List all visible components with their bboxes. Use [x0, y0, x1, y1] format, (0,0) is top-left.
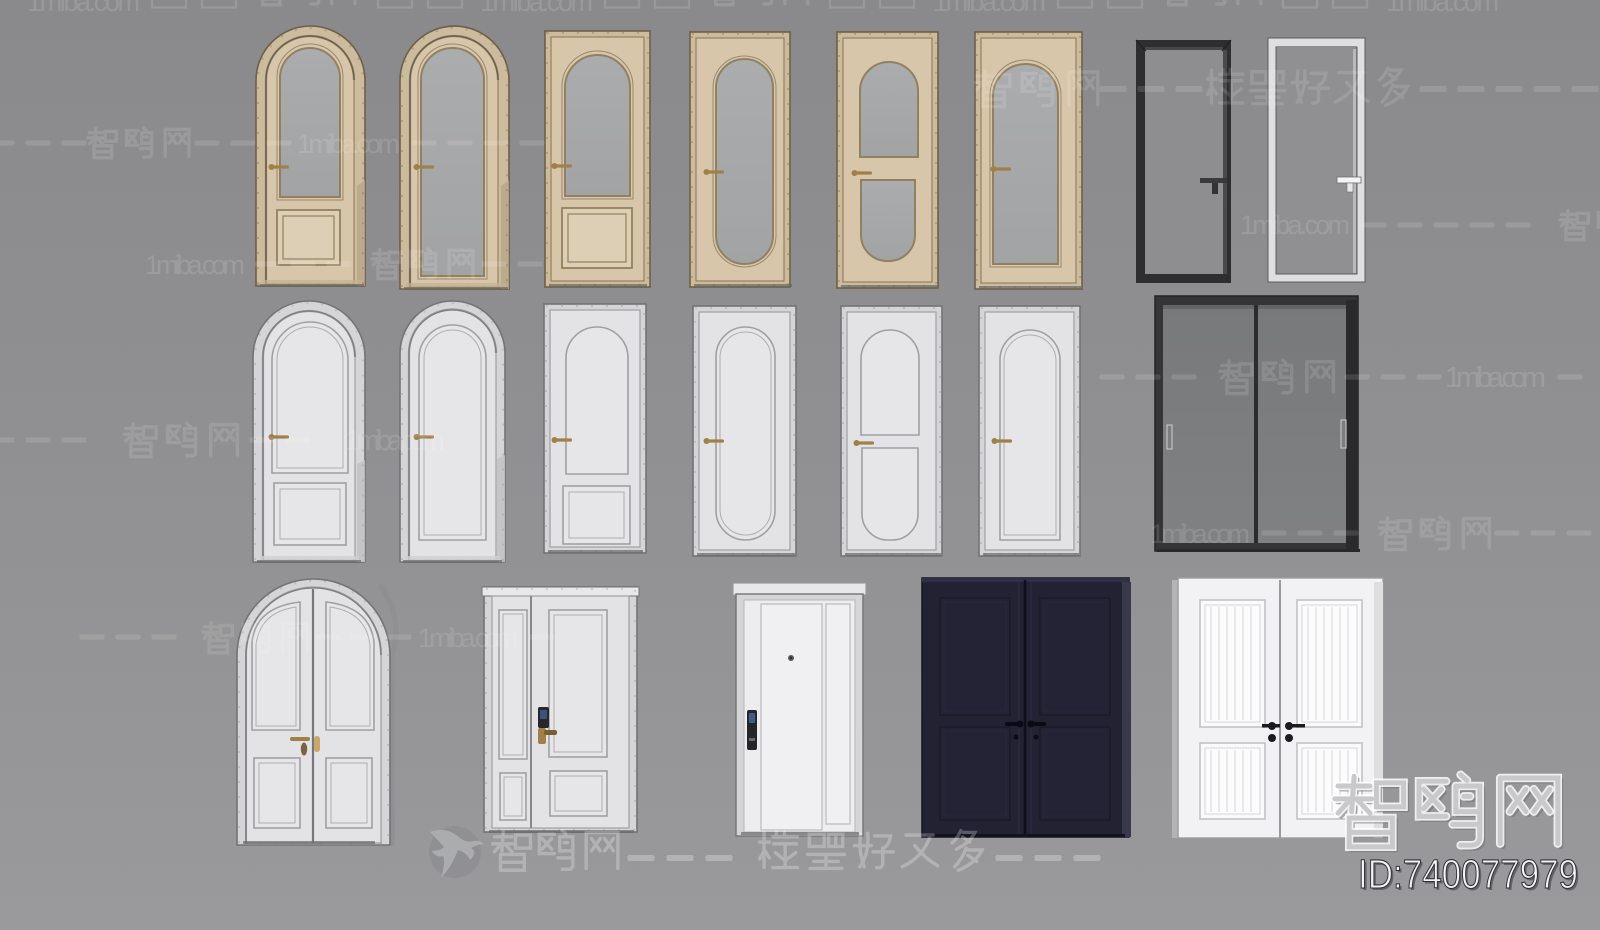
svg-text:1miba.com: 1miba.com	[1240, 210, 1350, 240]
svg-text:1miba.com: 1miba.com	[1445, 362, 1546, 394]
svg-text:ID:740077979: ID:740077979	[1358, 851, 1578, 897]
svg-text:1miba.com: 1miba.com	[27, 0, 140, 17]
svg-text:1miba.com: 1miba.com	[480, 0, 593, 17]
svg-text:1miba.com: 1miba.com	[145, 250, 245, 280]
svg-text:1miba.com: 1miba.com	[933, 0, 1046, 17]
svg-text:1miba.com: 1miba.com	[418, 623, 518, 653]
svg-text:1miba.com: 1miba.com	[345, 425, 445, 457]
svg-text:1miba.com: 1miba.com	[1150, 519, 1250, 549]
svg-text:1miba.com: 1miba.com	[1386, 0, 1499, 17]
svg-text:1miba.com: 1miba.com	[297, 129, 400, 159]
